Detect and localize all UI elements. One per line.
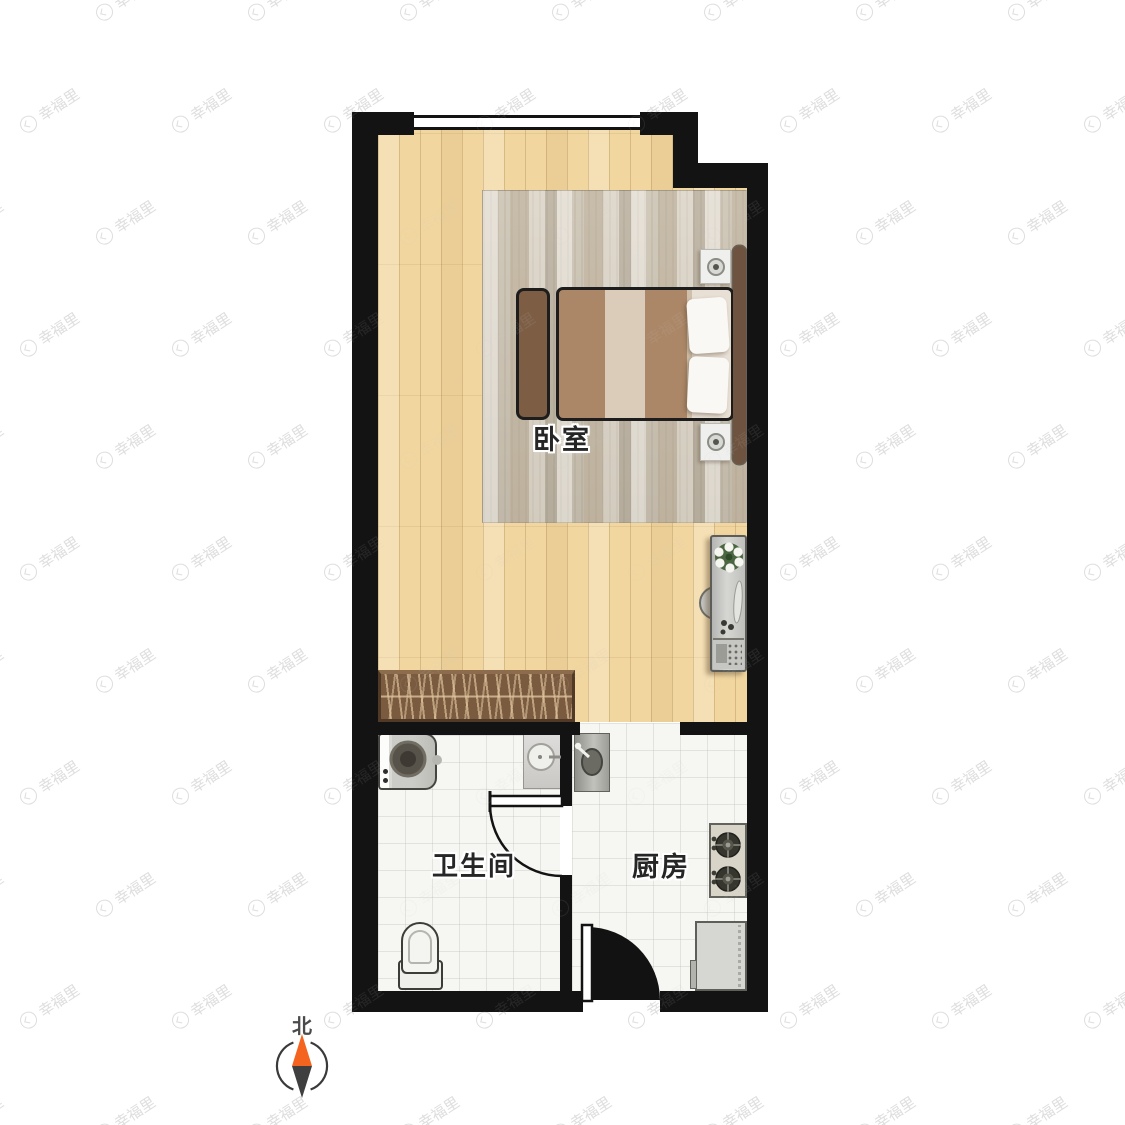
xingfuli-house-logo (1081, 112, 1105, 136)
xingfuli-house-logo (1081, 1008, 1105, 1032)
watermark: 幸福里 (0, 643, 7, 697)
xingfuli-house-logo (929, 112, 953, 136)
watermark: 幸福里 (16, 531, 84, 585)
watermark: 幸福里 (0, 867, 7, 921)
xingfuli-house-logo (853, 896, 877, 920)
xingfuli-house-logo (17, 784, 41, 808)
gas-stove (709, 823, 747, 898)
watermark: 幸福里 (0, 419, 7, 473)
kitchen-label: 厨房 (631, 845, 691, 884)
xingfuli-house-logo (397, 0, 421, 24)
watermark: 幸福里 (1004, 0, 1072, 26)
watermark: 幸福里 (700, 1091, 768, 1125)
xingfuli-house-logo (701, 0, 725, 24)
watermark: 幸福里 (852, 643, 920, 697)
wall-step (673, 163, 768, 188)
xingfuli-house-logo (929, 784, 953, 808)
xingfuli-house-logo (549, 1120, 573, 1125)
compass-north-label: 北 (288, 1010, 316, 1039)
watermark: 幸福里 (0, 867, 7, 921)
watermark: 幸福里 (396, 1091, 464, 1125)
xingfuli-house-logo (17, 560, 41, 584)
watermark: 幸福里 (92, 195, 160, 249)
watermark: 幸福里 (0, 195, 7, 249)
watermark: 幸福里 (0, 419, 7, 473)
watermark: 幸福里 (548, 0, 616, 26)
xingfuli-house-logo (17, 112, 41, 136)
wall-divider-top (560, 722, 572, 806)
watermark: 幸福里 (16, 531, 84, 585)
xingfuli-house-logo (397, 0, 421, 24)
watermark: 幸福里 (928, 531, 996, 585)
xingfuli-house-logo (549, 0, 573, 24)
xingfuli-house-logo (777, 112, 801, 136)
watermark: 幸福里 (92, 419, 160, 473)
xingfuli-house-logo (321, 784, 345, 808)
watermark: 幸福里 (92, 867, 160, 921)
xingfuli-house-logo (17, 336, 41, 360)
xingfuli-house-logo (397, 1120, 421, 1125)
xingfuli-house-logo (245, 896, 269, 920)
xingfuli-house-logo (853, 1120, 877, 1125)
xingfuli-house-logo (1005, 1120, 1029, 1125)
xingfuli-house-logo (1005, 448, 1029, 472)
xingfuli-house-logo (701, 0, 725, 24)
watermark: 幸福里 (244, 1091, 312, 1125)
xingfuli-house-logo (169, 560, 193, 584)
xingfuli-house-logo (777, 112, 801, 136)
watermark: 幸福里 (928, 307, 996, 361)
xingfuli-house-logo (777, 336, 801, 360)
xingfuli-house-logo (777, 336, 801, 360)
vanity-desk (710, 535, 747, 672)
watermark: 幸福里 (1004, 419, 1072, 473)
watermark: 幸福里 (92, 1091, 160, 1125)
watermark: 幸福里 (0, 1091, 7, 1125)
xingfuli-house-logo (169, 336, 193, 360)
xingfuli-house-logo (777, 784, 801, 808)
watermark: 幸福里 (0, 1091, 7, 1125)
xingfuli-house-logo (1081, 560, 1105, 584)
xingfuli-house-logo (245, 224, 269, 248)
xingfuli-house-logo (93, 672, 117, 696)
desk-tray (716, 644, 727, 663)
xingfuli-house-logo (549, 0, 573, 24)
wall-bottom-left (352, 991, 583, 1012)
xingfuli-house-logo (93, 448, 117, 472)
watermark: 幸福里 (0, 195, 7, 249)
watermark: 幸福里 (700, 1091, 768, 1125)
xingfuli-house-logo (17, 1008, 41, 1032)
watermark: 幸福里 (548, 1091, 616, 1125)
watermark: 幸福里 (776, 307, 844, 361)
xingfuli-house-logo (853, 1120, 877, 1125)
watermark: 幸福里 (1004, 195, 1072, 249)
watermark: 幸福里 (700, 0, 768, 26)
toilet (401, 922, 439, 974)
watermark: 幸福里 (1004, 643, 1072, 697)
watermark: 幸福里 (928, 531, 996, 585)
xingfuli-house-logo (929, 112, 953, 136)
desk-drawers (713, 638, 744, 669)
watermark: 幸福里 (1080, 531, 1125, 585)
watermark: 幸福里 (244, 643, 312, 697)
watermark: 幸福里 (168, 307, 236, 361)
xingfuli-house-logo (169, 1008, 193, 1032)
xingfuli-house-logo (929, 784, 953, 808)
watermark: 幸福里 (16, 979, 84, 1033)
xingfuli-house-logo (245, 0, 269, 24)
xingfuli-house-logo (93, 0, 117, 24)
xingfuli-house-logo (1005, 224, 1029, 248)
xingfuli-house-logo (321, 112, 345, 136)
watermark: 幸福里 (852, 0, 920, 26)
xingfuli-house-logo (853, 672, 877, 696)
watermark: 幸福里 (928, 755, 996, 809)
xingfuli-house-logo (853, 896, 877, 920)
watermark: 幸福里 (0, 0, 7, 26)
xingfuli-house-logo (1081, 560, 1105, 584)
watermark: 幸福里 (16, 83, 84, 137)
bathroom-label: 卫生间 (426, 846, 522, 883)
watermark: 幸福里 (168, 531, 236, 585)
xingfuli-house-logo (321, 560, 345, 584)
watermark: 幸福里 (168, 755, 236, 809)
xingfuli-house-logo (321, 1008, 345, 1032)
xingfuli-house-logo (853, 672, 877, 696)
watermark: 幸福里 (16, 307, 84, 361)
xingfuli-house-logo (853, 448, 877, 472)
watermark: 幸福里 (1080, 755, 1125, 809)
watermark: 幸福里 (1080, 307, 1125, 361)
watermark: 幸福里 (1004, 867, 1072, 921)
wall-corner-topright (640, 112, 698, 135)
watermark: 幸福里 (852, 1091, 920, 1125)
wall-left (352, 112, 378, 1012)
xingfuli-house-logo (169, 560, 193, 584)
wall-bedroom-bottom-right (680, 722, 768, 735)
xingfuli-house-logo (1005, 0, 1029, 24)
refrigerator (695, 921, 747, 991)
xingfuli-house-logo (701, 1120, 725, 1125)
watermark: 幸福里 (852, 0, 920, 26)
lamp-icon (707, 258, 725, 276)
xingfuli-house-logo (93, 672, 117, 696)
watermark: 幸福里 (776, 307, 844, 361)
watermark: 幸福里 (1080, 755, 1125, 809)
watermark: 幸福里 (244, 195, 312, 249)
xingfuli-house-logo (17, 1008, 41, 1032)
watermark: 幸福里 (852, 1091, 920, 1125)
xingfuli-house-logo (1005, 1120, 1029, 1125)
xingfuli-house-logo (1005, 448, 1029, 472)
xingfuli-house-logo (321, 336, 345, 360)
xingfuli-house-logo (929, 560, 953, 584)
watermark: 幸福里 (776, 531, 844, 585)
xingfuli-house-logo (169, 784, 193, 808)
xingfuli-house-logo (625, 1008, 649, 1032)
xingfuli-house-logo (1081, 336, 1105, 360)
wall-right-upper (673, 134, 698, 164)
watermark: 幸福里 (928, 83, 996, 137)
xingfuli-house-logo (1081, 336, 1105, 360)
xingfuli-house-logo (929, 336, 953, 360)
xingfuli-house-logo (17, 112, 41, 136)
bathroom-sink (523, 733, 563, 789)
watermark: 幸福里 (852, 867, 920, 921)
watermark: 幸福里 (168, 755, 236, 809)
watermark: 幸福里 (928, 307, 996, 361)
watermark: 幸福里 (1080, 531, 1125, 585)
xingfuli-house-logo (245, 896, 269, 920)
watermark: 幸福里 (928, 755, 996, 809)
watermark: 幸福里 (244, 419, 312, 473)
xingfuli-house-logo (245, 672, 269, 696)
xingfuli-house-logo (93, 896, 117, 920)
xingfuli-house-logo (1005, 672, 1029, 696)
bed-bench (516, 288, 550, 420)
lamp-icon (707, 433, 725, 451)
watermark: 幸福里 (700, 0, 768, 26)
watermark: 幸福里 (852, 195, 920, 249)
watermark: 幸福里 (168, 83, 236, 137)
xingfuli-house-logo (1005, 0, 1029, 24)
xingfuli-house-logo (777, 560, 801, 584)
watermark: 幸福里 (1080, 83, 1125, 137)
xingfuli-house-logo (1081, 112, 1105, 136)
watermark: 幸福里 (16, 307, 84, 361)
watermark: 幸福里 (852, 643, 920, 697)
watermark: 幸福里 (16, 979, 84, 1033)
watermark: 幸福里 (92, 643, 160, 697)
watermark: 幸福里 (1004, 0, 1072, 26)
watermark: 幸福里 (776, 531, 844, 585)
bedroom-label: 卧室 (520, 418, 604, 457)
wall-corner-topleft (352, 112, 414, 135)
watermark: 幸福里 (852, 419, 920, 473)
watermark: 幸福里 (1080, 307, 1125, 361)
watermark: 幸福里 (168, 307, 236, 361)
watermark: 幸福里 (852, 867, 920, 921)
watermark: 幸福里 (548, 1091, 616, 1125)
xingfuli-house-logo (17, 560, 41, 584)
watermark: 幸福里 (1004, 419, 1072, 473)
watermark: 幸福里 (92, 643, 160, 697)
xingfuli-house-logo (929, 1008, 953, 1032)
xingfuli-house-logo (625, 1008, 649, 1032)
watermark: 幸福里 (244, 643, 312, 697)
watermark: 幸福里 (244, 1091, 312, 1125)
xingfuli-house-logo (321, 560, 345, 584)
watermark: 幸福里 (396, 0, 464, 26)
watermark: 幸福里 (776, 755, 844, 809)
watermark: 幸福里 (92, 419, 160, 473)
xingfuli-house-logo (245, 224, 269, 248)
xingfuli-house-logo (93, 1120, 117, 1125)
xingfuli-house-logo (853, 0, 877, 24)
xingfuli-house-logo (169, 112, 193, 136)
xingfuli-house-logo (169, 784, 193, 808)
xingfuli-house-logo (321, 336, 345, 360)
xingfuli-house-logo (245, 1120, 269, 1125)
xingfuli-house-logo (93, 224, 117, 248)
watermark: 幸福里 (776, 83, 844, 137)
watermark: 幸福里 (92, 867, 160, 921)
xingfuli-house-logo (397, 1120, 421, 1125)
xingfuli-house-logo (777, 784, 801, 808)
washing-machine (378, 733, 437, 790)
xingfuli-house-logo (169, 336, 193, 360)
washer-knob (383, 769, 388, 774)
wardrobe-closet (378, 670, 575, 722)
xingfuli-house-logo (93, 1120, 117, 1125)
wall-bottom-right (660, 991, 768, 1012)
watermark: 幸福里 (0, 0, 7, 26)
watermark: 幸福里 (168, 979, 236, 1033)
xingfuli-house-logo (321, 112, 345, 136)
xingfuli-house-logo (929, 1008, 953, 1032)
watermark: 幸福里 (852, 419, 920, 473)
xingfuli-house-logo (853, 0, 877, 24)
watermark: 幸福里 (776, 979, 844, 1033)
xingfuli-house-logo (1005, 896, 1029, 920)
watermark: 幸福里 (928, 83, 996, 137)
washer-knob (383, 778, 388, 783)
watermark: 幸福里 (776, 755, 844, 809)
watermark: 幸福里 (16, 83, 84, 137)
watermark: 幸福里 (396, 1091, 464, 1125)
xingfuli-house-logo (549, 1120, 573, 1125)
xingfuli-house-logo (93, 896, 117, 920)
watermark: 幸福里 (1080, 979, 1125, 1033)
xingfuli-house-logo (169, 1008, 193, 1032)
xingfuli-house-logo (93, 0, 117, 24)
kitchen-sink (574, 733, 610, 792)
watermark: 幸福里 (396, 0, 464, 26)
watermark: 幸福里 (16, 755, 84, 809)
watermark: 幸福里 (1004, 1091, 1072, 1125)
xingfuli-house-logo (17, 784, 41, 808)
watermark: 幸福里 (244, 0, 312, 26)
xingfuli-house-logo (245, 1120, 269, 1125)
watermark: 幸福里 (1080, 979, 1125, 1033)
bed-headboard (733, 246, 746, 464)
xingfuli-house-logo (1005, 896, 1029, 920)
watermark: 幸福里 (168, 979, 236, 1033)
watermark: 幸福里 (92, 0, 160, 26)
watermark: 幸福里 (244, 419, 312, 473)
watermark: 幸福里 (1004, 643, 1072, 697)
xingfuli-house-logo (17, 336, 41, 360)
watermark: 幸福里 (1004, 867, 1072, 921)
nightstand-bottom (700, 423, 731, 461)
double-bed (556, 287, 734, 421)
xingfuli-house-logo (1081, 1008, 1105, 1032)
watermark: 幸福里 (1004, 1091, 1072, 1125)
xingfuli-house-logo (245, 672, 269, 696)
fridge-handle (690, 960, 697, 989)
watermark: 幸福里 (776, 979, 844, 1033)
watermark: 幸福里 (1004, 195, 1072, 249)
xingfuli-house-logo (93, 448, 117, 472)
compass-south-needle (292, 1066, 312, 1098)
floor-plan-canvas: 幸福里幸福里幸福里幸福里幸福里幸福里幸福里幸福里幸福里幸福里幸福里幸福里幸福里幸… (0, 0, 1125, 1125)
watermark: 幸福里 (852, 195, 920, 249)
compass-icon (277, 1034, 327, 1098)
xingfuli-house-logo (1081, 784, 1105, 808)
xingfuli-house-logo (853, 224, 877, 248)
xingfuli-house-logo (245, 0, 269, 24)
xingfuli-house-logo (929, 336, 953, 360)
watermark: 幸福里 (244, 195, 312, 249)
watermark: 幸福里 (168, 531, 236, 585)
desk-dot-grid (727, 643, 742, 665)
xingfuli-house-logo (93, 224, 117, 248)
xingfuli-house-logo (1005, 224, 1029, 248)
nightstand-top (700, 249, 731, 284)
pillow (686, 297, 730, 355)
watermark: 幸福里 (16, 755, 84, 809)
xingfuli-house-logo (169, 112, 193, 136)
window (414, 115, 640, 130)
watermark: 幸福里 (928, 979, 996, 1033)
xingfuli-house-logo (777, 1008, 801, 1032)
watermark: 幸福里 (92, 195, 160, 249)
watermark: 幸福里 (168, 83, 236, 137)
watermark: 幸福里 (928, 979, 996, 1033)
xingfuli-house-logo (321, 784, 345, 808)
xingfuli-house-logo (1005, 672, 1029, 696)
watermark: 幸福里 (776, 83, 844, 137)
xingfuli-house-logo (777, 1008, 801, 1032)
watermark: 幸福里 (1080, 83, 1125, 137)
wall-right (747, 187, 768, 1012)
xingfuli-house-logo (701, 1120, 725, 1125)
pillow (687, 356, 730, 414)
watermark: 幸福里 (0, 643, 7, 697)
watermark: 幸福里 (244, 867, 312, 921)
watermark: 幸福里 (548, 0, 616, 26)
xingfuli-house-logo (245, 448, 269, 472)
xingfuli-house-logo (777, 560, 801, 584)
watermark: 幸福里 (244, 867, 312, 921)
watermark: 幸福里 (244, 0, 312, 26)
wall-bedroom-bottom-left (352, 722, 580, 735)
xingfuli-house-logo (853, 224, 877, 248)
xingfuli-house-logo (1081, 784, 1105, 808)
watermark: 幸福里 (92, 0, 160, 26)
xingfuli-house-logo (853, 448, 877, 472)
xingfuli-house-logo (321, 1008, 345, 1032)
watermark: 幸福里 (92, 1091, 160, 1125)
xingfuli-house-logo (245, 448, 269, 472)
xingfuli-house-logo (929, 560, 953, 584)
